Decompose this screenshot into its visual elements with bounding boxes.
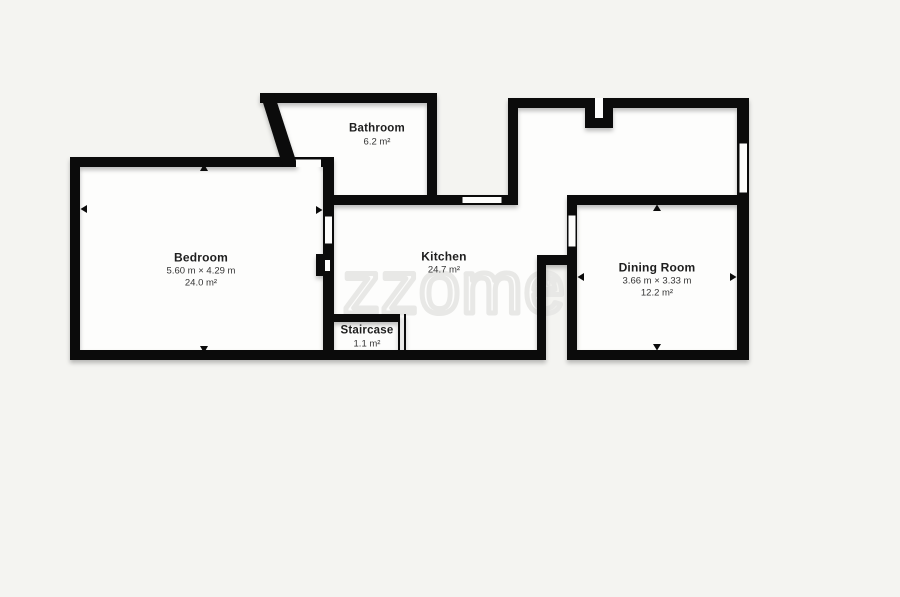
room-area-label-bedroom: 24.0 m² bbox=[167, 278, 236, 290]
wall-staircase-jamb-left bbox=[398, 314, 400, 353]
wall-upper-top-b bbox=[613, 98, 749, 108]
room-label-kitchen: Kitchen 24.7 m² bbox=[421, 250, 466, 277]
wall-bathroom-right bbox=[427, 93, 437, 205]
wall-staircase-jamb-right bbox=[404, 314, 406, 353]
floor-plan-drawing: zzome ® bbox=[0, 0, 900, 597]
room-label-bathroom: Bathroom 6.2 m² bbox=[349, 122, 405, 149]
room-area-kitchen-upper bbox=[513, 103, 743, 202]
watermark-registered-icon: ® bbox=[546, 274, 557, 290]
floor-plan-canvas: zzome ® bbox=[0, 0, 900, 597]
wall-bathroom-top bbox=[260, 93, 437, 103]
wall-notch-right bbox=[603, 98, 613, 128]
wall-kitchen-right bbox=[537, 255, 546, 360]
wall-chimney-bump bbox=[316, 254, 326, 276]
room-area-label-dining: 12.2 m² bbox=[619, 288, 696, 300]
room-name-staircase: Staircase bbox=[341, 324, 394, 339]
wall-right-exterior bbox=[737, 98, 749, 360]
door-bedroom-kitchen bbox=[325, 216, 333, 244]
chimney-notch bbox=[325, 260, 330, 271]
door-lintel-line bbox=[294, 157, 323, 160]
room-area-label-kitchen: 24.7 m² bbox=[421, 265, 466, 277]
room-label-staircase: Staircase 1.1 m² bbox=[341, 324, 394, 351]
room-dimensions-bedroom: 5.60 m × 4.29 m bbox=[167, 266, 236, 278]
room-area-label-staircase: 1.1 m² bbox=[341, 339, 394, 351]
door-bedroom-bathroom bbox=[296, 160, 321, 168]
room-area-label-bathroom: 6.2 m² bbox=[349, 137, 405, 149]
wall-bedroom-top-left bbox=[70, 157, 290, 167]
wall-bedroom-left bbox=[70, 157, 80, 360]
room-name-dining: Dining Room bbox=[619, 261, 696, 276]
wall-bottom-main bbox=[70, 350, 546, 360]
room-name-bedroom: Bedroom bbox=[167, 251, 236, 266]
room-name-bathroom: Bathroom bbox=[349, 122, 405, 137]
room-name-kitchen: Kitchen bbox=[421, 250, 466, 265]
window-east bbox=[739, 143, 748, 193]
notch-gap bbox=[595, 98, 603, 118]
wall-staircase-top bbox=[334, 314, 398, 322]
room-label-bedroom: Bedroom 5.60 m × 4.29 m 24.0 m² bbox=[167, 251, 236, 290]
room-dimensions-dining: 3.66 m × 3.33 m bbox=[619, 276, 696, 288]
room-label-dining: Dining Room 3.66 m × 3.33 m 12.2 m² bbox=[619, 261, 696, 300]
wall-dining-bottom bbox=[567, 350, 749, 360]
wall-upper-left bbox=[508, 98, 518, 205]
wall-upper-top-a bbox=[508, 98, 588, 108]
window-kitchen-north bbox=[462, 197, 502, 204]
door-dining bbox=[568, 215, 576, 247]
wall-dining-top bbox=[567, 195, 749, 205]
